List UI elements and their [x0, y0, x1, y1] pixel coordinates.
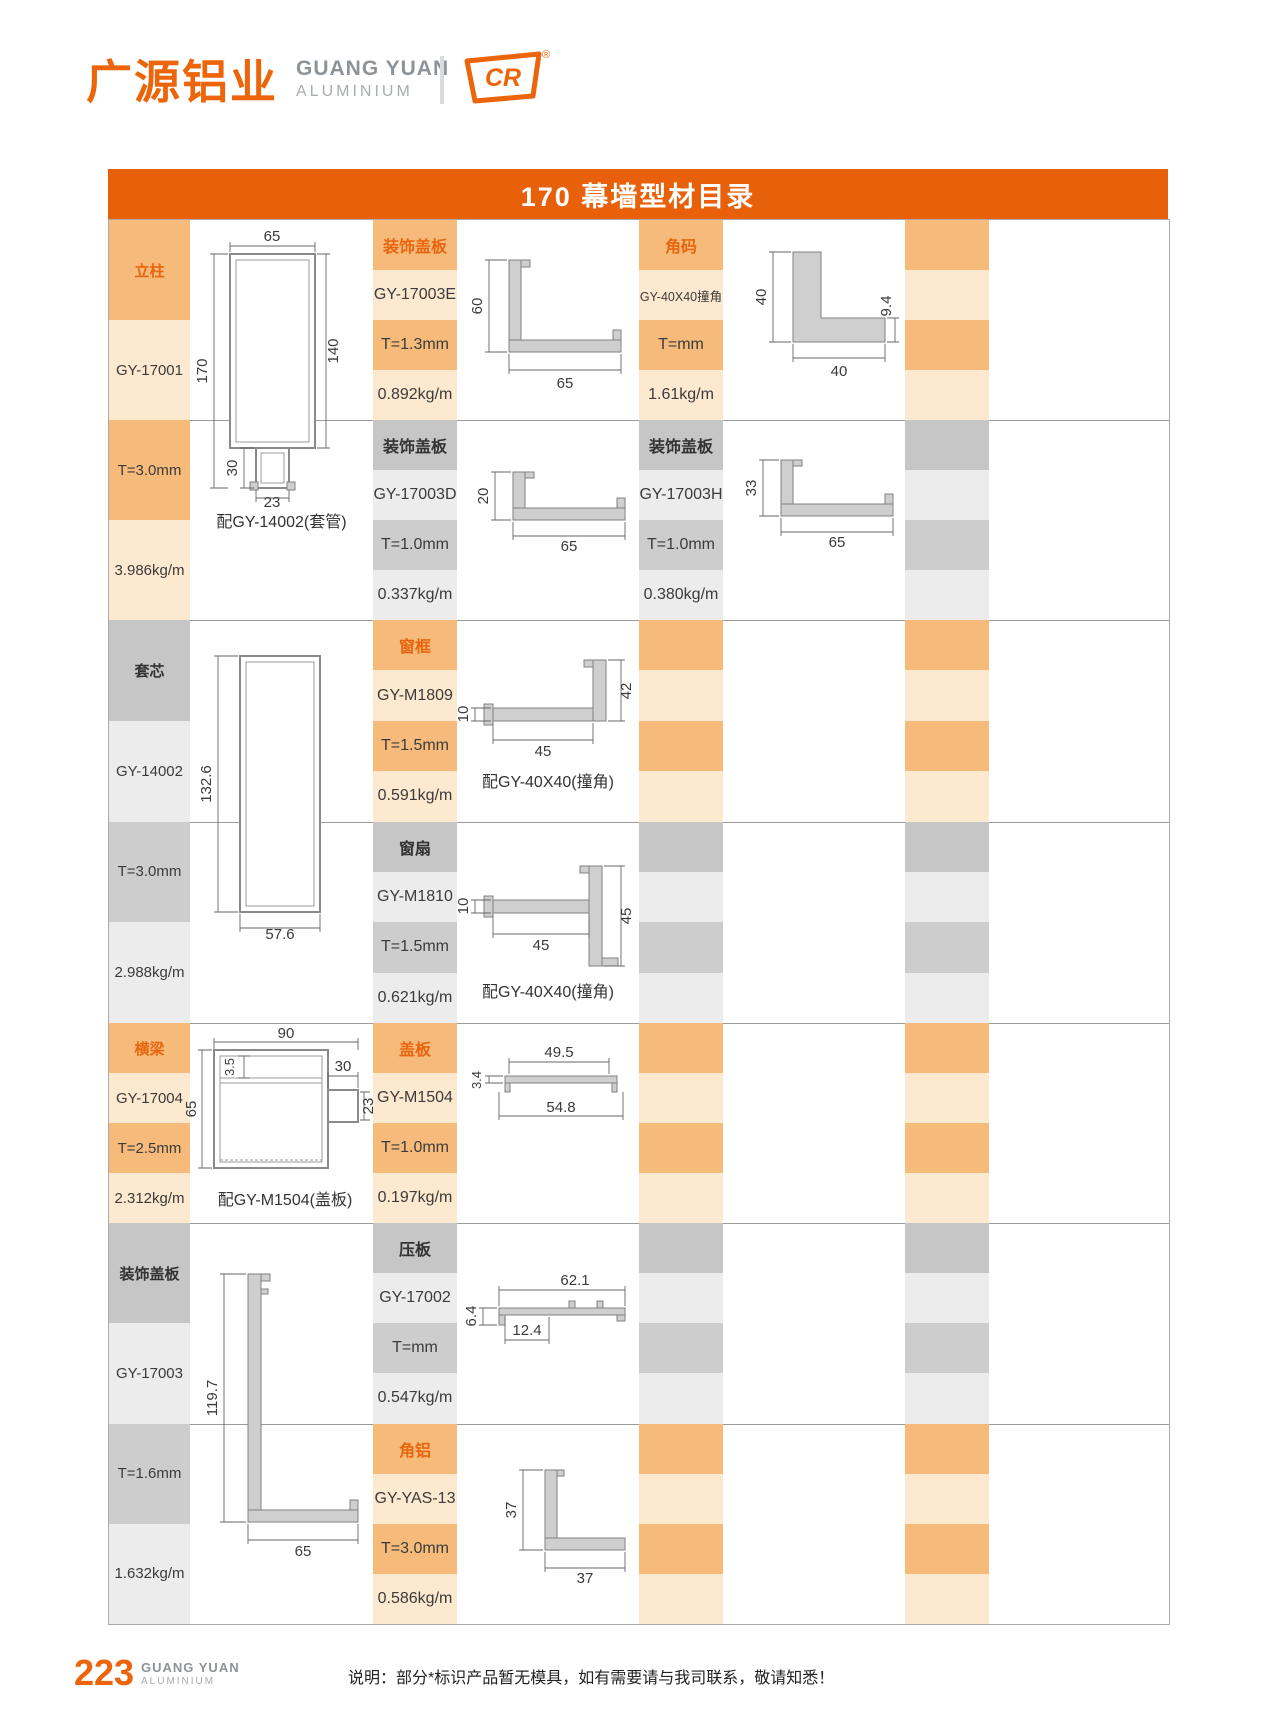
profile-thickness: T=1.0mm [373, 1123, 457, 1173]
empty-cell [639, 1023, 723, 1073]
drawing-gy-17001: 65 170 140 30 23 [190, 230, 373, 508]
drawing-caption: 配GY-14002(套管) [190, 508, 373, 532]
empty-cell [639, 721, 723, 771]
empty-cell [639, 620, 723, 670]
profile-category: 窗框 [373, 620, 457, 670]
profile-thickness: T=mm [373, 1323, 457, 1373]
dim-label: 60 [469, 298, 486, 315]
profile-weight: 2.988kg/m [109, 922, 190, 1023]
profile-weight: 0.892kg/m [373, 370, 457, 420]
empty-cell [905, 1474, 989, 1524]
dim-label: 23 [360, 1098, 377, 1115]
drawing-gy-17003: 119.7 65 [190, 1256, 373, 1566]
empty-label-column [905, 420, 989, 620]
profile-code: GY-17003 [109, 1323, 190, 1423]
label-block-zhuangshigaiban: 装饰盖板 GY-17003 T=1.6mm 1.632kg/m [109, 1223, 190, 1624]
dim-label: 37 [577, 1570, 594, 1587]
dim-label: 40 [831, 363, 848, 380]
profile-code: GY-17002 [373, 1273, 457, 1323]
dim-label: 90 [278, 1025, 295, 1042]
drawing-gy-17004: 90 30 3.5 65 23 [190, 1028, 380, 1190]
brand-logo-english-sub: ALUMINIUM [296, 83, 413, 101]
empty-cell [905, 270, 989, 320]
profile-code: GY-17004 [109, 1073, 190, 1123]
empty-cell [639, 1323, 723, 1373]
label-block-lizhu: 立柱 GY-17001 T=3.0mm 3.986kg/m [109, 220, 190, 620]
dim-label: 3.4 [469, 1071, 484, 1089]
profile-thickness: T=1.5mm [373, 922, 457, 972]
empty-cell [639, 1073, 723, 1123]
profile-thickness: T=1.0mm [373, 520, 457, 570]
empty-cell [905, 973, 989, 1023]
empty-label-column [639, 1223, 723, 1424]
empty-cell [639, 872, 723, 922]
dim-label: 20 [475, 488, 492, 505]
profile-code: GY-17001 [109, 320, 190, 420]
profile-code: GY-40X40撞角 [639, 270, 723, 320]
profile-category: 装饰盖板 [373, 420, 457, 470]
label-block-hengliang: 横梁 GY-17004 T=2.5mm 2.312kg/m [109, 1023, 190, 1223]
empty-cell [905, 1373, 989, 1423]
empty-cell [905, 520, 989, 570]
profile-weight: 0.197kg/m [373, 1173, 457, 1223]
profile-weight: 0.586kg/m [373, 1574, 457, 1624]
profile-thickness: T=1.0mm [639, 520, 723, 570]
empty-cell [905, 721, 989, 771]
drawing-gy-17003d: 20 65 [457, 448, 639, 554]
empty-cell [905, 470, 989, 520]
drawing-gy-m1810: 10 45 45 [457, 854, 639, 978]
dim-label: 40 [753, 289, 770, 306]
dim-label: 65 [557, 375, 574, 392]
profile-code: GY-YAS-13 [373, 1474, 457, 1524]
profile-category: 压板 [373, 1223, 457, 1273]
drawing-caption: 配GY-M1504(盖板) [190, 1186, 380, 1210]
empty-cell [639, 973, 723, 1023]
profile-weight: 1.632kg/m [109, 1524, 190, 1624]
profile-thickness: T=1.3mm [373, 320, 457, 370]
profile-thickness: T=mm [639, 320, 723, 370]
profile-category: 盖板 [373, 1023, 457, 1073]
profile-weight: 0.337kg/m [373, 570, 457, 620]
label-block-chuangshan: 窗扇 GY-M1810 T=1.5mm 0.621kg/m [373, 822, 457, 1024]
empty-cell [905, 1173, 989, 1223]
dim-label: 65 [183, 1101, 200, 1118]
profile-code: GY-14002 [109, 721, 190, 822]
dim-label: 37 [503, 1502, 520, 1519]
empty-cell [639, 1223, 723, 1273]
empty-cell [905, 1023, 989, 1073]
empty-cell [905, 1123, 989, 1173]
empty-label-column [639, 1424, 723, 1625]
footer-brand: GUANG YUAN [141, 1660, 240, 1675]
profile-weight: 0.547kg/m [373, 1373, 457, 1423]
profile-thickness: T=1.5mm [373, 721, 457, 771]
empty-cell [905, 1073, 989, 1123]
empty-cell [905, 370, 989, 420]
profile-thickness: T=2.5mm [109, 1123, 190, 1173]
dim-label: 45 [618, 908, 635, 925]
dim-label: 57.6 [265, 926, 294, 943]
label-block-yaban: 压板 GY-17002 T=mm 0.547kg/m [373, 1223, 457, 1424]
empty-cell [905, 1424, 989, 1474]
empty-cell [639, 922, 723, 972]
empty-cell [639, 1424, 723, 1474]
dim-label: 33 [743, 480, 760, 497]
empty-cell [905, 570, 989, 620]
dim-label: 10 [455, 706, 472, 723]
profile-category: 装饰盖板 [373, 220, 457, 270]
profile-thickness: T=3.0mm [109, 420, 190, 520]
label-block-taoxin: 套芯 GY-14002 T=3.0mm 2.988kg/m [109, 620, 190, 1023]
dim-label: 10 [455, 898, 472, 915]
profile-weight: 1.61kg/m [639, 370, 723, 420]
profile-category: 窗扇 [373, 822, 457, 872]
page-title: 170 幕墙型材目录 [108, 169, 1168, 219]
label-block-gy17003e: 装饰盖板 GY-17003E T=1.3mm 0.892kg/m [373, 220, 457, 420]
label-block-gy17003d: 装饰盖板 GY-17003D T=1.0mm 0.337kg/m [373, 420, 457, 620]
profile-category: 套芯 [109, 620, 190, 721]
empty-label-column [639, 620, 723, 822]
empty-cell [905, 1223, 989, 1273]
empty-label-column [639, 1023, 723, 1223]
dim-label: 30 [224, 460, 241, 477]
brand-logo-english: GUANG YUAN [296, 57, 449, 81]
empty-label-column [905, 620, 989, 822]
profile-category: 角铝 [373, 1424, 457, 1474]
profile-category: 角码 [639, 220, 723, 270]
cr-logo: CR ® [455, 46, 555, 112]
empty-cell [905, 1574, 989, 1624]
profile-table: 立柱 GY-17001 T=3.0mm 3.986kg/m 套芯 GY-1400… [108, 219, 1170, 1625]
drawing-gy-17003h: 33 65 [723, 444, 905, 554]
empty-cell [905, 420, 989, 470]
dim-label: 62.1 [560, 1272, 589, 1289]
label-block-jiaolv: 角铝 GY-YAS-13 T=3.0mm 0.586kg/m [373, 1424, 457, 1625]
profile-code: GY-17003H [639, 470, 723, 520]
empty-cell [905, 771, 989, 821]
dim-label: 140 [325, 338, 342, 363]
cr-logo-text: CR [485, 64, 521, 92]
profile-thickness: T=3.0mm [373, 1524, 457, 1574]
dim-label: 65 [561, 538, 578, 555]
profile-category: 装饰盖板 [639, 420, 723, 470]
empty-cell [639, 822, 723, 872]
drawing-caption: 配GY-40X40(撞角) [457, 768, 639, 792]
dim-label: 54.8 [546, 1099, 575, 1116]
empty-cell [905, 872, 989, 922]
dim-label: 12.4 [512, 1322, 541, 1339]
dim-label: 6.4 [463, 1306, 480, 1327]
empty-cell [905, 1323, 989, 1373]
drawing-gy-17003e: 60 65 [457, 234, 639, 394]
brand-logo-chinese: 广源铝业 [86, 46, 278, 112]
empty-cell [905, 670, 989, 720]
profile-code: GY-M1810 [373, 872, 457, 922]
empty-cell [905, 822, 989, 872]
dim-label: 65 [295, 1543, 312, 1560]
empty-cell [639, 1474, 723, 1524]
profile-category: 立柱 [109, 220, 190, 320]
profile-weight: 0.621kg/m [373, 973, 457, 1023]
empty-cell [639, 1574, 723, 1624]
profile-code: GY-17003E [373, 270, 457, 320]
label-block-gaiban: 盖板 GY-M1504 T=1.0mm 0.197kg/m [373, 1023, 457, 1223]
drawing-gy-m1504: 49.5 3.4 54.8 [457, 1044, 639, 1144]
drawing-gy-40x40: 40 40 9.4 [723, 234, 905, 394]
empty-cell [905, 1273, 989, 1323]
empty-cell [639, 771, 723, 821]
profile-weight: 0.380kg/m [639, 570, 723, 620]
empty-cell [639, 670, 723, 720]
dim-label: 3.5 [222, 1058, 237, 1076]
drawing-gy-14002: 132.6 57.6 [190, 640, 373, 940]
dim-label: 49.5 [544, 1044, 573, 1061]
empty-cell [639, 1273, 723, 1323]
profile-code: GY-M1504 [373, 1073, 457, 1123]
catalog-page: 广源铝业 GUANG YUAN ALUMINIUM CR ® 170 幕墙型材目… [0, 0, 1277, 1721]
empty-cell [639, 1373, 723, 1423]
profile-weight: 3.986kg/m [109, 520, 190, 620]
profile-code: GY-M1809 [373, 670, 457, 720]
page-number: 223 [74, 1652, 134, 1694]
empty-label-column [905, 220, 989, 420]
empty-cell [905, 922, 989, 972]
dim-label: 132.6 [198, 765, 215, 803]
empty-cell [639, 1123, 723, 1173]
dim-label: 65 [264, 228, 281, 245]
profile-thickness: T=3.0mm [109, 822, 190, 923]
empty-label-column [905, 1424, 989, 1625]
empty-label-column [905, 822, 989, 1024]
dim-label: 45 [533, 937, 550, 954]
logo-divider [440, 56, 444, 104]
empty-cell [905, 320, 989, 370]
dim-label: 65 [829, 534, 846, 551]
empty-cell [905, 220, 989, 270]
registered-mark-icon: ® [542, 49, 550, 61]
empty-label-column [905, 1023, 989, 1223]
profile-category: 横梁 [109, 1023, 190, 1073]
footer-brand-sub: ALUMINIUM [141, 1676, 215, 1687]
profile-thickness: T=1.6mm [109, 1424, 190, 1524]
dim-label: 119.7 [204, 1380, 221, 1416]
profile-weight: 2.312kg/m [109, 1173, 190, 1223]
drawing-gy-17002: 62.1 12.4 6.4 [457, 1272, 639, 1380]
profile-code: GY-17003D [373, 470, 457, 520]
empty-cell [639, 1173, 723, 1223]
dim-label: 45 [535, 743, 552, 760]
dim-label: 30 [335, 1058, 352, 1075]
label-block-jiaoma: 角码 GY-40X40撞角 T=mm 1.61kg/m [639, 220, 723, 420]
empty-cell [639, 1524, 723, 1574]
drawing-gy-yas-13: 37 37 [457, 1456, 639, 1586]
drawing-caption: 配GY-40X40(撞角) [457, 978, 639, 1002]
drawing-gy-m1809: 10 45 42 [457, 644, 639, 762]
label-block-gy17003h: 装饰盖板 GY-17003H T=1.0mm 0.380kg/m [639, 420, 723, 620]
dim-label: 42 [618, 683, 635, 700]
profile-category: 装饰盖板 [109, 1223, 190, 1323]
empty-label-column [905, 1223, 989, 1424]
footer-note: 说明：部分*标识产品暂无模具，如有需要请与我司联系，敬请知悉！ [348, 1664, 834, 1688]
label-block-chuangkuang: 窗框 GY-M1809 T=1.5mm 0.591kg/m [373, 620, 457, 822]
dim-label: 9.4 [878, 296, 895, 317]
empty-cell [905, 1524, 989, 1574]
empty-cell [905, 620, 989, 670]
empty-label-column [639, 822, 723, 1024]
profile-weight: 0.591kg/m [373, 771, 457, 821]
dim-label: 170 [194, 358, 211, 383]
